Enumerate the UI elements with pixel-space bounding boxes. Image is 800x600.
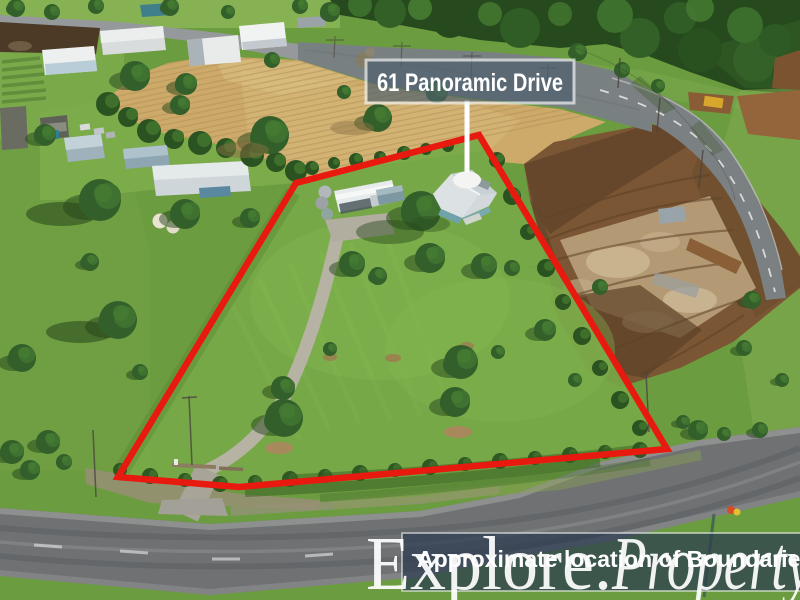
svg-text:Property: Property xyxy=(611,522,800,600)
svg-text:Explore.: Explore. xyxy=(366,522,612,600)
svg-text:61 Panoramic Drive: 61 Panoramic Drive xyxy=(377,69,563,97)
